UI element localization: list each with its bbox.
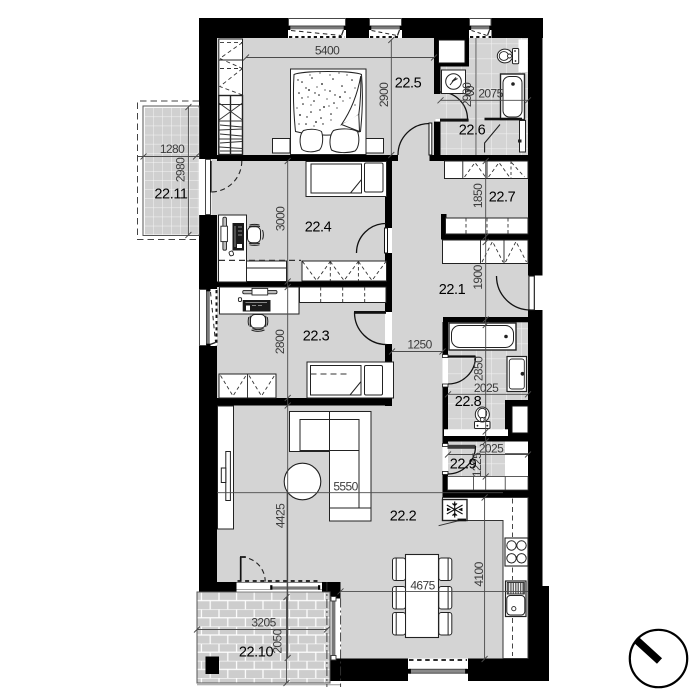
svg-text:22.10: 22.10 [239, 645, 274, 661]
svg-text:22.9: 22.9 [450, 457, 477, 473]
svg-text:2850: 2850 [471, 356, 485, 381]
svg-text:2075: 2075 [478, 86, 503, 100]
svg-text:4675: 4675 [410, 578, 435, 592]
svg-text:3205: 3205 [251, 616, 276, 630]
svg-text:22.1: 22.1 [439, 282, 466, 298]
svg-text:22.4: 22.4 [305, 220, 332, 236]
svg-text:1850: 1850 [471, 183, 485, 208]
svg-text:2800: 2800 [273, 329, 287, 354]
svg-text:2025: 2025 [474, 381, 499, 395]
svg-text:5400: 5400 [315, 44, 340, 58]
svg-text:22.5: 22.5 [395, 76, 422, 92]
svg-text:22.3: 22.3 [303, 329, 330, 345]
svg-text:4100: 4100 [472, 561, 486, 586]
svg-text:5550: 5550 [333, 480, 358, 494]
svg-text:22.2: 22.2 [390, 509, 417, 525]
svg-text:1250: 1250 [407, 338, 432, 352]
svg-text:2900: 2900 [460, 82, 474, 107]
svg-text:22.8: 22.8 [455, 394, 482, 410]
svg-text:22.11: 22.11 [154, 187, 188, 203]
svg-text:1280: 1280 [160, 142, 185, 156]
svg-text:2980: 2980 [174, 157, 188, 182]
svg-text:22.6: 22.6 [459, 123, 486, 139]
svg-text:1900: 1900 [471, 264, 485, 289]
svg-text:4425: 4425 [273, 503, 287, 528]
svg-text:2900: 2900 [377, 82, 391, 107]
svg-text:22.7: 22.7 [489, 190, 516, 206]
svg-text:3000: 3000 [273, 206, 287, 231]
